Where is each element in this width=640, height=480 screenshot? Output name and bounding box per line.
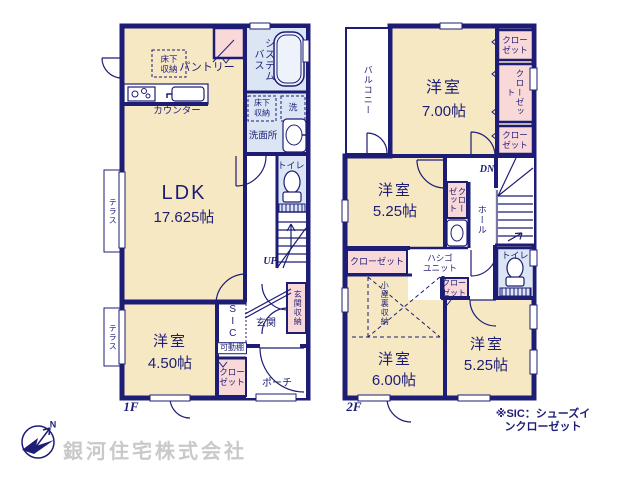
label-room525b-name: 洋室: [470, 336, 504, 354]
label-toilet-2f: トイレ: [501, 251, 528, 262]
label-ldk-name: LDK: [162, 181, 207, 205]
label-attic-storage: 小屋裏収納: [380, 277, 388, 329]
sic-note: ※SIC：シューズインクローゼット: [495, 408, 592, 434]
label-room600-size: 6.00帖: [372, 372, 416, 390]
label-washroom: 洗面所: [249, 130, 278, 141]
label-closet-d: クロー ゼット: [442, 278, 466, 297]
label-balcony: バルコニー: [362, 57, 371, 123]
label-closet-b: クローゼット: [506, 65, 524, 121]
label-closet-a: クロー ゼット: [502, 35, 528, 55]
label-hall: ホール: [476, 199, 485, 241]
north-compass-icon: [22, 426, 54, 458]
label-room700-name: 洋室: [426, 78, 462, 97]
label-movable-shelf: 可動棚: [217, 342, 247, 354]
label-up: UP: [263, 256, 276, 268]
label-toilet-1f: トイレ: [277, 161, 304, 172]
label-room700-size: 7.00帖: [422, 103, 466, 121]
north-label: N: [50, 420, 57, 431]
label-system-bath: システムバス: [252, 35, 273, 85]
company-logo-text: 銀河住宅株式会社: [63, 440, 247, 464]
label-room450-size: 4.50帖: [148, 355, 192, 373]
label-genkan: 玄関: [256, 318, 276, 330]
label-room525a-name: 洋室: [378, 182, 412, 200]
label-counter: カウンター: [153, 105, 201, 116]
label-room600-name: 洋室: [378, 351, 412, 369]
label-floor-2: 2F: [346, 399, 361, 415]
washbasin-icon: [283, 119, 306, 152]
label-closet-e: クローゼット: [350, 257, 404, 268]
label-ladder-unit: ハシゴ ユニット: [423, 253, 457, 273]
label-pantry: パントリー: [179, 61, 235, 74]
label-dn: DN: [480, 164, 494, 176]
label-terrace-2: テラス: [108, 317, 116, 357]
label-porch: ポーチ: [262, 378, 292, 390]
label-underfloor-1: 床下 収納: [160, 54, 177, 74]
label-genkan-storage: 玄関収納: [293, 285, 301, 331]
label-closet-1f: クロー ゼット: [219, 367, 245, 387]
label-closet-mid: クローゼット: [448, 184, 466, 216]
hall-washbasin-icon: [447, 220, 467, 246]
label-sic: SIC: [227, 304, 238, 340]
label-floor-1: 1F: [123, 399, 138, 415]
label-room525a-size: 5.25帖: [373, 203, 417, 221]
label-room450-name: 洋室: [153, 333, 187, 351]
label-closet-c: クロー ゼット: [502, 130, 528, 150]
label-ldk-size: 17.625帖: [154, 209, 215, 227]
floor-plan-page: LDK 17.625帖 床下 収納 パントリー カウンター システムバス 床下 …: [0, 0, 640, 480]
bathtub-icon: [274, 32, 304, 86]
kitchen-counter-icon: [124, 84, 208, 104]
label-underfloor-2: 床下 収納: [254, 98, 270, 117]
label-washer: 洗: [288, 103, 297, 114]
label-room525b-size: 5.25帖: [464, 357, 508, 375]
label-terrace-1: テラス: [108, 191, 116, 231]
